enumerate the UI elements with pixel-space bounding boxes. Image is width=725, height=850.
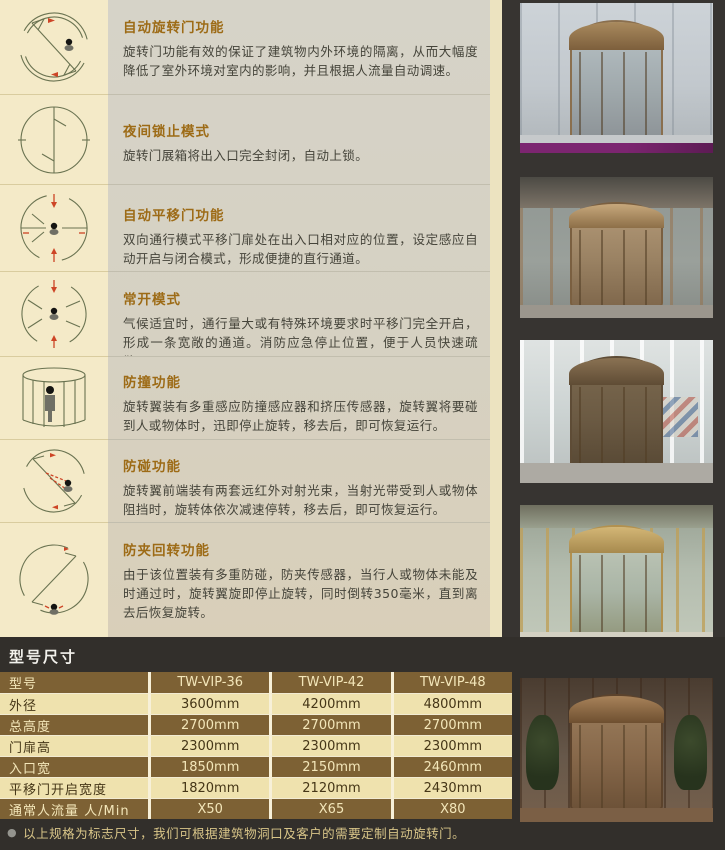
door-canopy [569, 204, 665, 228]
photo-floor [520, 808, 713, 822]
section-body: 由于该位置装有多重防碰，防夹传感器，当行人或物体未能及时通过时，旋转翼旋即停止旋… [123, 565, 478, 622]
diagram-cell-2 [0, 95, 108, 185]
section-title: 常开模式 [123, 288, 478, 308]
diagram-cell-1 [0, 0, 108, 95]
feature-section: 常开模式 气候适宜时，通行量大或有特殊环境要求时平移门完全开启，形成一条宽敞的通… [108, 272, 490, 357]
footnote: ● 以上规格为标志尺寸，我们可根据建筑物洞口及客户的需要定制自动旋转门。 [7, 823, 465, 842]
feature-section: 自动旋转门功能 旋转门功能有效的保证了建筑物内外环境的隔离，从而大幅度降低了室外… [108, 0, 490, 95]
plant-right [674, 715, 707, 790]
diagram-cell-5 [0, 357, 108, 440]
section-body: 旋转翼装有多重感应防撞感应器和挤压传感器，旋转翼将要碰到人或物体时，迅即停止旋转… [123, 397, 478, 435]
photo-revolving-door-5 [520, 678, 713, 822]
photo-revolving-door-2 [520, 177, 713, 318]
door-glass [579, 387, 653, 470]
revolving-door-drum [570, 202, 663, 306]
cell: 2460mm [391, 756, 512, 777]
section-title: 防撞功能 [123, 371, 478, 391]
table-row: 门扉高 2300mm 2300mm 2300mm [0, 735, 512, 756]
cell: 2700mm [391, 714, 512, 735]
footnote-text: 以上规格为标志尺寸，我们可根据建筑物洞口及客户的需要定制自动旋转门。 [23, 823, 465, 842]
feature-section: 防碰功能 旋转翼前端装有两套远红外对射光束，当射光带受到人或物体阻挡时，旋转体依… [108, 440, 490, 523]
row-label: 入口宽 [0, 756, 148, 777]
table-row: 总高度 2700mm 2700mm 2700mm [0, 714, 512, 735]
door-glass [579, 555, 653, 635]
door-canopy [569, 358, 665, 385]
revolving-door-drum [570, 525, 663, 637]
table-header-row: 型号 TW-VIP-36 TW-VIP-42 TW-VIP-48 [0, 672, 512, 693]
always-open-mode-icon [4, 277, 104, 351]
diagram-cell-7 [0, 523, 108, 636]
plant-left [526, 715, 559, 790]
row-label: 总高度 [0, 714, 148, 735]
section-title: 夜间锁止模式 [123, 120, 478, 140]
door-glass [579, 230, 653, 304]
photo-floor [520, 463, 713, 483]
feature-section: 防夹回转功能 由于该位置装有多重防碰，防夹传感器，当行人或物体未能及时通过时，旋… [108, 523, 490, 637]
bullet-icon: ● [7, 826, 17, 839]
revolving-door-drum [570, 356, 663, 472]
photo-revolving-door-1 [520, 3, 713, 153]
section-body: 双向通行模式平移门扉处在出入口相对应的位置，设定感应自动开启与闭合模式，形成便捷… [123, 230, 478, 268]
cell: 4800mm [391, 693, 512, 714]
row-label: 平移门开启宽度 [0, 777, 148, 798]
photo-purple-strip [520, 143, 713, 154]
photo-floor [520, 305, 713, 318]
door-glass [579, 725, 653, 808]
table-row: 入口宽 1850mm 2150mm 2460mm [0, 756, 512, 777]
door-glass [579, 52, 653, 139]
section-title: 防夹回转功能 [123, 539, 478, 559]
cell: 2300mm [148, 735, 269, 756]
cell: X65 [269, 798, 390, 819]
infrared-beam-icon [4, 445, 104, 517]
table-row: 平移门开启宽度 1820mm 2120mm 2430mm [0, 777, 512, 798]
section-title: 防碰功能 [123, 455, 478, 475]
header-cell: TW-VIP-42 [269, 672, 390, 693]
feature-section: 夜间锁止模式 旋转门展箱将出入口完全封闭，自动上锁。 [108, 95, 490, 185]
cell: 2300mm [269, 735, 390, 756]
auto-sliding-door-icon [4, 190, 104, 266]
page-margin-strip [490, 0, 502, 637]
header-cell: TW-VIP-36 [148, 672, 269, 693]
table-row: 通常人流量 人/Min X50 X65 X80 [0, 798, 512, 819]
cell: 3600mm [148, 693, 269, 714]
feature-section: 防撞功能 旋转翼装有多重感应防撞感应器和挤压传感器，旋转翼将要碰到人或物体时，迅… [108, 357, 490, 440]
table-row: 外径 3600mm 4200mm 4800mm [0, 693, 512, 714]
row-label: 通常人流量 人/Min [0, 798, 148, 819]
night-lock-icon [4, 101, 104, 179]
brochure-page: 自动旋转门功能 旋转门功能有效的保证了建筑物内外环境的隔离，从而大幅度降低了室外… [0, 0, 725, 850]
cell: X50 [148, 798, 269, 819]
cell: 2300mm [391, 735, 512, 756]
anti-collision-door-icon [4, 362, 104, 434]
row-label: 门扉高 [0, 735, 148, 756]
cell: 2150mm [269, 756, 390, 777]
section-body: 气候适宜时，通行量大或有特殊环境要求时平移门完全开启，形成一条宽敞的通道。消防应… [123, 314, 478, 357]
section-title: 自动平移门功能 [123, 204, 478, 224]
diagram-column [0, 0, 108, 637]
header-cell: TW-VIP-48 [391, 672, 512, 693]
cell: 2430mm [391, 777, 512, 798]
revolving-door-drum [570, 694, 663, 811]
revolving-door-drum [570, 20, 663, 142]
door-canopy [569, 527, 665, 553]
row-label: 外径 [0, 693, 148, 714]
section-body: 旋转翼前端装有两套远红外对射光束，当射光带受到人或物体阻挡时，旋转体依次减速停转… [123, 481, 478, 519]
anti-pinch-reverse-icon [4, 537, 104, 623]
photo-revolving-door-4 [520, 505, 713, 648]
diagram-cell-3 [0, 185, 108, 272]
auto-revolving-door-icon [4, 6, 104, 88]
cell: X80 [391, 798, 512, 819]
spec-table: 型号 TW-VIP-36 TW-VIP-42 TW-VIP-48 外径 3600… [0, 672, 512, 819]
door-canopy [569, 696, 665, 723]
cell: 2700mm [269, 714, 390, 735]
diagram-cell-4 [0, 272, 108, 357]
section-body: 旋转门功能有效的保证了建筑物内外环境的隔离，从而大幅度降低了室外环境对室内的影响… [123, 42, 478, 80]
cell: 4200mm [269, 693, 390, 714]
cell: 2120mm [269, 777, 390, 798]
section-title: 自动旋转门功能 [123, 16, 478, 36]
cell: 1820mm [148, 777, 269, 798]
feature-text-column: 自动旋转门功能 旋转门功能有效的保证了建筑物内外环境的隔离，从而大幅度降低了室外… [108, 0, 490, 637]
spec-title: 型号尺寸 [9, 646, 77, 667]
diagram-cell-6 [0, 440, 108, 523]
cell: 1850mm [148, 756, 269, 777]
photo-revolving-door-3 [520, 340, 713, 483]
feature-section: 自动平移门功能 双向通行模式平移门扉处在出入口相对应的位置，设定感应自动开启与闭… [108, 185, 490, 272]
header-cell: 型号 [0, 672, 148, 693]
section-body: 旋转门展箱将出入口完全封闭，自动上锁。 [123, 146, 478, 165]
cell: 2700mm [148, 714, 269, 735]
